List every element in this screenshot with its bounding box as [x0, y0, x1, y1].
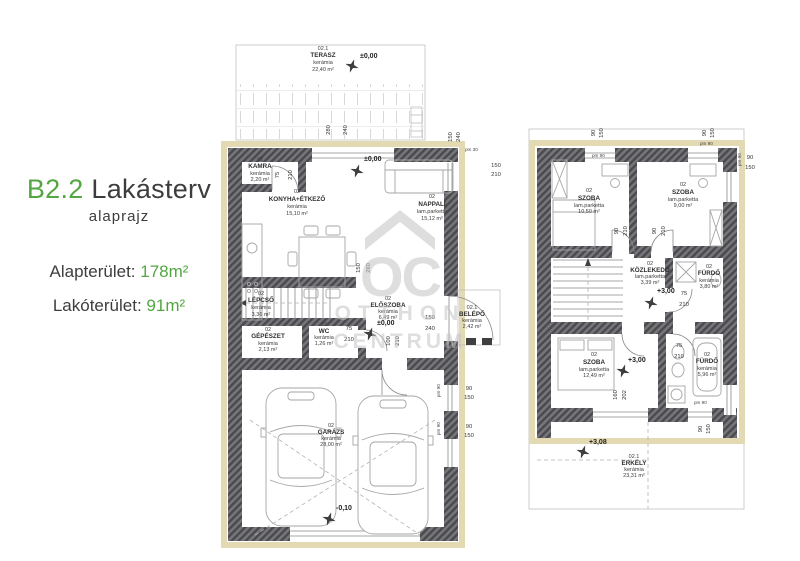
- svg-text:75: 75: [681, 291, 687, 297]
- svg-text:150: 150: [710, 128, 716, 138]
- svg-text:9,00 m²: 9,00 m²: [674, 203, 693, 209]
- svg-text:kerámia: kerámia: [313, 60, 334, 66]
- svg-text:75: 75: [676, 343, 682, 349]
- svg-text:150: 150: [599, 128, 605, 138]
- svg-text:-0,10: -0,10: [336, 505, 352, 512]
- svg-text:90: 90: [466, 424, 472, 430]
- svg-text:±0,00: ±0,00: [364, 156, 382, 163]
- svg-text:pm 90: pm 90: [737, 153, 742, 166]
- watermark-line1: OTTHON: [335, 302, 466, 325]
- svg-text:23,31 m²: 23,31 m²: [623, 473, 645, 479]
- svg-text:3,80 m²: 3,80 m²: [700, 284, 719, 290]
- svg-text:22,40 m²: 22,40 m²: [312, 67, 334, 73]
- sofa-outline: [385, 160, 453, 193]
- svg-text:12,49 m²: 12,49 m²: [583, 373, 605, 379]
- svg-text:2,13 m²: 2,13 m²: [259, 347, 278, 353]
- svg-text:+3,08: +3,08: [589, 439, 607, 446]
- svg-text:15,10 m²: 15,10 m²: [286, 211, 308, 217]
- shower-furdo1: [676, 262, 696, 282]
- svg-text:kerámia: kerámia: [251, 305, 272, 311]
- svg-text:+3,00: +3,00: [628, 357, 646, 364]
- svg-text:150: 150: [464, 395, 474, 401]
- room-label-terasz: 02.1TERASZ kerámia22,40 m²: [310, 46, 335, 73]
- wardrobe-szoba1: [552, 160, 567, 198]
- svg-text:SZOBA: SZOBA: [578, 195, 600, 202]
- svg-text:02: 02: [429, 194, 435, 200]
- svg-text:1,26 m²: 1,26 m²: [315, 341, 334, 347]
- svg-text:KÖZLEKEDŐ: KÖZLEKEDŐ: [630, 265, 670, 274]
- svg-text:3,36 m²: 3,36 m²: [252, 312, 271, 318]
- desk-szoba1: [602, 164, 628, 188]
- svg-text:2,20 m²: 2,20 m²: [251, 177, 270, 183]
- svg-text:210: 210: [623, 226, 629, 236]
- svg-text:NAPPALI: NAPPALI: [418, 201, 445, 208]
- watermark-monogram: OC: [360, 245, 441, 308]
- svg-text:90: 90: [466, 386, 472, 392]
- svg-text:kerámia: kerámia: [287, 204, 308, 210]
- svg-text:240: 240: [456, 132, 462, 142]
- room-label-szoba3: 02SZOBA lam.parketta12,49 m²: [579, 352, 610, 379]
- svg-text:210: 210: [491, 172, 501, 178]
- svg-text:02: 02: [294, 189, 300, 195]
- svg-text:90: 90: [614, 228, 620, 234]
- svg-text:pm 30: pm 30: [465, 147, 478, 152]
- room-label-konyha: 02KONYHA+ÉTKEZŐ kerámia15,10 m²: [269, 189, 326, 217]
- svg-text:3,39 m²: 3,39 m²: [641, 280, 660, 286]
- room-label-nappali: 02NAPPALI lam.parketta15,12 m²: [417, 194, 448, 222]
- svg-text:150: 150: [491, 163, 501, 169]
- svg-text:90: 90: [747, 155, 753, 161]
- svg-text:GARÁZS: GARÁZS: [318, 427, 345, 436]
- basins-furdo2: [672, 345, 684, 377]
- svg-text:210: 210: [288, 170, 294, 180]
- svg-text:pm 90: pm 90: [436, 422, 441, 435]
- room-label-gepeszet: 02GÉPÉSZET kerámia2,13 m²: [251, 327, 285, 353]
- svg-text:90: 90: [652, 228, 658, 234]
- svg-text:150: 150: [745, 165, 755, 171]
- svg-text:LÉPCSŐ: LÉPCSŐ: [248, 295, 274, 304]
- svg-text:202: 202: [622, 390, 628, 400]
- svg-text:lam.parketta: lam.parketta: [417, 209, 448, 215]
- uf-staircase: [553, 258, 623, 320]
- svg-text:pm 90: pm 90: [700, 141, 713, 146]
- svg-text:pm 90: pm 90: [694, 400, 707, 405]
- svg-text:150: 150: [464, 433, 474, 439]
- svg-text:±0,00: ±0,00: [360, 53, 378, 60]
- room-label-lepcso: 02LÉPCSŐ kerámia3,36 m²: [248, 291, 274, 318]
- svg-text:15,12 m²: 15,12 m²: [421, 216, 443, 222]
- svg-text:GÉPÉSZET: GÉPÉSZET: [251, 331, 285, 340]
- svg-text:ERKÉLY: ERKÉLY: [622, 458, 648, 467]
- garage-cars: [250, 388, 435, 535]
- upper-floor-plan: 02SZOBA lam.parketta10,50 m² 02SZOBA lam…: [529, 128, 755, 509]
- svg-text:SZOBA: SZOBA: [672, 189, 694, 196]
- svg-text:150: 150: [448, 132, 454, 142]
- room-label-furdo2: 02FÜRDŐ kerámia5,96 m²: [696, 352, 718, 378]
- svg-text:+3,00: +3,00: [657, 288, 675, 295]
- washer-furdo2: [668, 386, 685, 403]
- watermark-line2: CENTRUM: [334, 330, 467, 353]
- svg-text:90: 90: [698, 426, 704, 432]
- room-label-kozlekedo: 02KÖZLEKEDŐ lam.parketta3,39 m²: [630, 261, 670, 286]
- svg-text:02: 02: [591, 352, 597, 358]
- svg-text:02: 02: [586, 188, 592, 194]
- svg-text:160: 160: [613, 390, 619, 400]
- room-label-szoba2: 02SZOBA lam.parketta9,00 m²: [668, 182, 699, 209]
- desk-szoba2: [690, 164, 716, 188]
- room-label-szoba1: 02SZOBA lam.parketta10,50 m²: [574, 188, 605, 215]
- svg-text:pm 90: pm 90: [592, 153, 605, 158]
- svg-text:TERASZ: TERASZ: [310, 52, 335, 59]
- svg-text:WC: WC: [319, 328, 330, 335]
- svg-text:FÜRDŐ: FÜRDŐ: [698, 268, 720, 277]
- wardrobe-szoba2: [710, 210, 722, 246]
- svg-text:75: 75: [275, 172, 281, 178]
- svg-text:02: 02: [680, 182, 686, 188]
- svg-text:210: 210: [674, 354, 684, 360]
- svg-text:280: 280: [326, 125, 332, 135]
- room-label-furdo1: 02FÜRDŐ kerámia3,80 m²: [698, 264, 720, 290]
- svg-text:10,50 m²: 10,50 m²: [578, 209, 600, 215]
- room-label-erkely: 02.1ERKÉLY kerámia23,31 m²: [622, 454, 648, 479]
- svg-text:90: 90: [702, 130, 708, 136]
- svg-text:240: 240: [343, 125, 349, 135]
- svg-text:pm 90: pm 90: [436, 384, 441, 397]
- svg-text:FÜRDŐ: FÜRDŐ: [696, 356, 718, 365]
- floor-plan-drawing: 02.1TERASZ kerámia22,40 m² 02KAMRA kerám…: [0, 0, 800, 561]
- svg-text:90: 90: [591, 130, 597, 136]
- svg-text:210: 210: [661, 226, 667, 236]
- svg-text:SZOBA: SZOBA: [583, 359, 605, 366]
- svg-text:210: 210: [679, 302, 689, 308]
- svg-text:KAMRA: KAMRA: [248, 163, 272, 170]
- svg-text:150: 150: [706, 424, 712, 434]
- svg-text:KONYHA+ÉTKEZŐ: KONYHA+ÉTKEZŐ: [269, 194, 326, 203]
- svg-text:5,96 m²: 5,96 m²: [698, 372, 717, 378]
- svg-text:28,00 m²: 28,00 m²: [320, 442, 342, 448]
